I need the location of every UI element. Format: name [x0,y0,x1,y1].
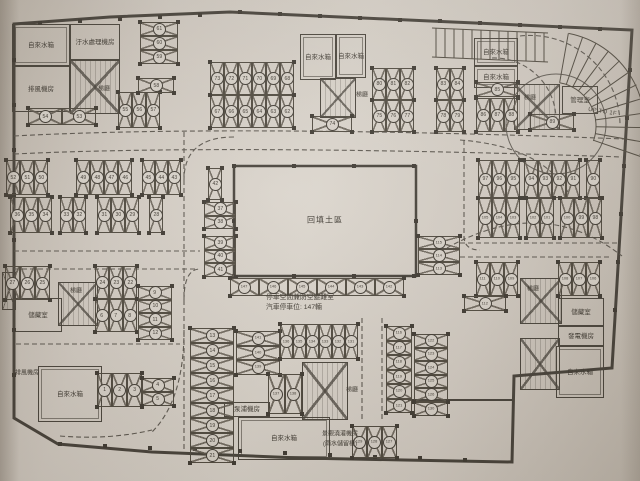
parking-stall: 5 [142,392,174,406]
parking-stall: 25 [35,266,50,300]
stall-number: 27 [6,277,19,290]
parking-stall-group: 116117118119120121 [386,326,412,413]
stall-number: 66 [225,105,238,118]
room-label: 自來水箱 [57,391,83,398]
stall-number: 145 [296,281,309,294]
parking-stall-group: 808182 [372,68,414,100]
parking-stall: 6 [95,299,109,332]
column-tick [95,405,99,409]
structural-column [358,16,362,20]
parking-stall-group: 737271706968 [210,62,294,95]
column-tick [74,158,78,162]
column-tick [524,236,528,240]
parking-stall: 99 [574,198,588,238]
parking-stall: 44 [155,160,168,195]
stall-number: 143 [354,281,367,294]
stall-number: 80 [373,78,386,91]
column-tick [474,80,478,84]
column-tick [558,236,562,240]
parking-stall: 34 [38,197,52,233]
parking-stall-group: 112 [464,296,506,311]
stall-number: 89 [546,116,559,129]
parking-stall-group: 130 [414,402,448,416]
column-tick [208,60,212,64]
stall-number: 70 [253,72,266,85]
stall-number: 7 [110,309,123,322]
stall-number: 120 [393,385,406,398]
structural-column [418,456,422,460]
parking-stall: 96 [492,160,506,198]
structural-column [158,15,162,19]
parking-stall: 61 [140,22,178,36]
stall-number: 97 [479,173,492,186]
stair-elevator-core [520,278,562,324]
structural-column [414,219,418,223]
parking-stall: 88 [504,98,518,132]
parking-stall: 58 [138,78,174,93]
parking-stall: 46 [118,160,132,195]
structural-column [328,453,332,457]
parking-stall: 52 [6,160,20,195]
column-tick [266,412,270,416]
stall-number: 101 [541,212,554,225]
column-tick [412,414,416,418]
stall-number: 55 [119,104,132,117]
parking-stall-group: 129128127 [352,426,397,458]
column-tick [356,322,360,326]
column-tick [278,357,282,361]
parking-stall: 85 [476,82,518,97]
column-tick [370,66,374,70]
parking-stall-group: 49484746 [76,160,132,195]
column-tick [446,414,450,418]
stall-number: 84 [451,78,464,91]
parking-stall-group: 89 [530,114,574,130]
stall-number: 34 [39,209,52,222]
parking-stall: 114 [418,249,460,262]
column-tick [172,91,176,95]
parking-stall: 89 [530,114,574,130]
plan-label: 梯廳 [98,87,110,94]
column-tick [234,329,238,333]
stall-number: 82 [401,78,414,91]
column-tick [412,400,416,404]
parking-stall: 68 [280,62,294,95]
parking-stall: 67 [210,95,224,128]
stall-number: 2 [113,384,126,397]
stair-elevator-core [320,78,356,118]
room-label: 自來水箱 [305,54,331,61]
column-tick [292,126,296,130]
parking-stall-group: 123 [97,373,142,407]
stall-number: 134 [306,335,319,348]
stall-number: 105 [479,212,492,225]
stall-number: 11 [149,313,162,326]
parking-stall-group: 115114113 [418,236,460,275]
parking-stall: 40 [204,250,236,264]
column-tick [600,196,604,200]
parking-stall: 70 [252,62,266,95]
structural-column [12,328,16,332]
parking-stall: 83 [436,68,450,100]
column-tick [412,332,416,336]
parking-stall: 108 [558,262,572,296]
parking-stall-group: 272625 [5,266,50,300]
parking-stall: 80 [372,68,386,100]
column-tick [395,424,399,428]
column-tick [158,126,162,130]
column-tick [58,195,62,199]
parking-stall: 75 [372,100,386,132]
stall-number: 119 [393,370,406,383]
parking-stall: 93 [538,160,552,198]
column-tick [516,96,520,100]
column-tick [350,424,354,428]
stall-number: 113 [433,262,446,275]
stall-number: 47 [105,171,118,184]
parking-stall: 91 [566,160,580,198]
parking-stall: 27 [5,266,20,300]
parking-stall: 24 [95,266,109,299]
column-tick [116,90,120,94]
stair-elevator-core [520,338,560,390]
stall-number: 15 [206,359,219,372]
column-tick [522,158,526,162]
parking-stall: 39 [204,236,236,250]
parking-stall: 84 [450,68,464,100]
parking-stall: 121 [386,399,412,414]
parking-stall: 72 [224,62,238,95]
stall-number: 9 [149,286,162,299]
parking-stall: 71 [238,62,252,95]
parking-stall: 21 [190,448,234,463]
plan-label: 景觀澆灌機房 [322,432,358,439]
parking-stall: 10 [138,300,172,314]
parking-stall-group: 5453 [28,108,96,125]
column-tick [446,400,450,404]
structural-column [352,164,356,168]
parking-stall: 63 [266,95,280,128]
column-tick [206,166,210,170]
stall-number: 48 [91,171,104,184]
stall-number: 83 [437,78,450,91]
stall-number: 115 [433,236,446,249]
column-tick [4,158,8,162]
column-tick [208,93,212,97]
column-tick [26,123,30,127]
plan-label: 梯廳 [70,289,82,296]
stall-number: 123 [425,348,438,361]
plan-label: 梯廳 [356,93,368,100]
column-tick [94,106,98,110]
stall-number: 30 [112,209,125,222]
parking-stall: 81 [386,68,400,100]
parking-stall: 12 [138,327,172,341]
parking-stall: 28 [149,197,163,233]
column-tick [136,338,140,342]
column-tick [572,128,576,132]
column-tick [170,338,174,342]
column-tick [462,98,466,102]
column-tick [234,200,238,204]
column-tick [462,309,466,313]
stall-number: 1 [98,384,111,397]
column-tick [3,298,7,302]
column-tick [3,264,7,268]
stall-number: 25 [36,277,49,290]
stall-number: 50 [35,171,48,184]
column-tick [188,326,192,330]
parking-floor-plan: 回填土區 停車空間兼防空避難室 汽車停車位: 147輛 UP TO 1F 自來水… [0,0,640,481]
column-tick [116,126,120,130]
parking-stall: 118 [386,355,412,370]
stall-number: 59 [153,51,166,64]
parking-stall: 36 [10,197,24,233]
column-tick [202,234,206,238]
column-tick [434,98,438,102]
column-tick [518,196,522,200]
parking-stall: 29 [125,197,139,233]
stall-number: 18 [206,404,219,417]
stall-number: 23 [110,276,123,289]
parking-stall: 42 [208,168,222,200]
parking-stall-group: 141140139 [236,331,280,375]
parking-stall: 94 [524,160,538,198]
structural-column [232,164,236,168]
stall-number: 52 [7,171,20,184]
parking-stall: 110 [490,262,504,296]
stall-number: 33 [60,209,73,222]
parking-stall-group: 28 [149,197,163,233]
column-tick [140,376,144,380]
column-tick [516,294,520,298]
stall-number: 114 [433,249,446,262]
parking-stall: 9 [138,286,172,300]
capacity-line: 汽車停車位: 147輛 [266,303,334,313]
column-tick [300,372,304,376]
parking-stall: 57 [146,92,160,128]
stall-number: 136 [280,335,293,348]
parking-stall: 98 [588,198,602,238]
stall-number: 90 [587,173,600,186]
parking-stall-group: 525150 [6,160,48,195]
parking-stall-group: 42 [208,168,222,200]
column-tick [94,123,98,127]
column-tick [136,76,140,80]
parking-stall: 7 [109,299,123,332]
column-tick [370,98,374,102]
stall-number: 63 [267,105,280,118]
column-tick [458,273,462,277]
parking-stall: 32 [73,197,86,233]
parking-stall-group: 74 [312,116,352,132]
column-tick [188,461,192,465]
column-tick [556,260,560,264]
parking-stall: 139 [236,360,280,375]
column-tick [516,130,520,134]
parking-stall-group: 58 [138,78,174,93]
column-tick [161,231,165,235]
parking-stall: 116 [386,326,412,341]
parking-stall-group: 454443 [142,160,181,195]
stall-number: 103 [507,212,520,225]
stall-number: 76 [387,110,400,123]
structural-column [118,17,122,21]
stall-number: 108 [559,273,572,286]
parking-stall-group: 105104103 [478,198,520,238]
stall-number: 46 [119,171,132,184]
structural-column [278,12,282,16]
column-tick [474,130,478,134]
column-tick [48,264,52,268]
stall-number: 88 [505,109,518,122]
stall-number: 127 [383,436,396,449]
stall-number: 126 [425,388,438,401]
column-tick [462,130,466,134]
column-tick [130,158,134,162]
stall-number: 111 [477,273,490,286]
stall-number: 109 [505,273,518,286]
stall-number: 37 [214,202,227,215]
structural-column [238,10,242,14]
stall-number: 110 [491,273,504,286]
structural-column [148,446,152,450]
column-tick [137,195,141,199]
parking-stall-group: 122123124125126 [414,334,448,402]
parking-stall: 82 [400,68,414,100]
parking-stall: 95 [506,160,520,198]
column-tick [524,196,528,200]
stall-number: 60 [153,37,166,50]
stall-number: 35 [25,209,38,222]
stall-number: 72 [225,72,238,85]
stall-number: 45 [142,171,155,184]
parking-stall: 38 [204,216,236,230]
structural-column [318,14,322,18]
plan-label: 梯廳 [346,388,358,395]
column-tick [95,231,99,235]
parking-stall-group: 8384 [436,68,464,100]
stall-number: 118 [393,356,406,369]
room: 自來水箱 [474,38,518,66]
stall-number: 62 [281,105,294,118]
column-tick [147,231,151,235]
parking-stall: 90 [586,160,600,198]
column-tick [598,158,602,162]
parking-stall: 115 [418,236,460,249]
column-tick [552,236,556,240]
parking-stall: 76 [386,100,400,132]
parking-stall: 35 [24,197,38,233]
parking-stall: 97 [478,160,492,198]
parking-stall: 103 [506,198,520,238]
column-tick [402,294,406,298]
stall-number: 6 [96,309,109,322]
parking-stall: 74 [312,116,352,132]
parking-stall-group: 3738 [204,202,236,229]
stall-number: 74 [326,118,339,131]
parking-stall: 56 [132,92,146,128]
stall-number: 106 [587,273,600,286]
column-tick [26,106,30,110]
parking-stall: 1 [97,373,112,407]
stall-number: 56 [133,104,146,117]
parking-stall: 69 [266,62,280,95]
stall-number: 26 [21,277,34,290]
column-tick [220,166,224,170]
parking-stall: 2 [112,373,127,407]
stall-number: 13 [206,329,219,342]
stall-number: 17 [206,389,219,402]
column-tick [384,324,388,328]
parking-stall: 49 [76,160,90,195]
room: 自來水箱 [38,366,102,422]
parking-stall: 120 [386,384,412,399]
backfill-area-label: 回填土區 [307,215,343,226]
parking-stall-group: 555657 [118,92,160,128]
column-tick [93,297,97,301]
column-tick [516,260,520,264]
column-tick [136,284,140,288]
column-tick [402,276,406,280]
plan-label: (雨水儲留槽) [323,442,357,449]
room-label: 管理室 [570,97,590,104]
parking-stall: 122 [414,334,448,348]
structural-column [463,458,467,462]
parking-stall-group: 108107106 [558,262,600,296]
stall-number: 4 [152,379,165,392]
structural-column [438,19,442,23]
column-tick [556,294,560,298]
stall-number: 10 [149,300,162,313]
column-tick [310,114,314,118]
structural-column [558,25,562,29]
parking-stall: 23 [109,266,123,299]
parking-stall: 19 [190,418,234,433]
column-tick [93,330,97,334]
parking-stall-group: 979695 [478,160,520,198]
stall-number: 8 [124,309,137,322]
room: 排風機房 [12,66,70,112]
stall-number: 91 [567,173,580,186]
column-tick [202,200,206,204]
column-tick [95,195,99,199]
column-tick [8,231,12,235]
room-label: 泵浦機房 [234,406,260,413]
parking-stall: 136 [280,324,293,359]
column-tick [58,231,62,235]
parking-stall: 77 [400,100,414,132]
column-tick [350,456,354,460]
room: 汙水處理機房 [70,24,120,60]
stall-number: 102 [527,212,540,225]
structural-column [628,68,632,72]
parking-stall: 14 [190,343,234,358]
stall-number: 99 [575,212,588,225]
stall-number: 116 [393,327,406,340]
structural-column [622,164,626,168]
structural-column [103,444,107,448]
column-tick [598,260,602,264]
column-tick [161,195,165,199]
stall-number: 57 [147,104,160,117]
parking-stall: 54 [28,108,62,125]
parking-stall: 102 [526,198,540,238]
column-tick [228,294,232,298]
parking-stall-group: 102101 [526,198,554,238]
column-tick [528,112,532,116]
parking-stall: 17 [190,388,234,403]
